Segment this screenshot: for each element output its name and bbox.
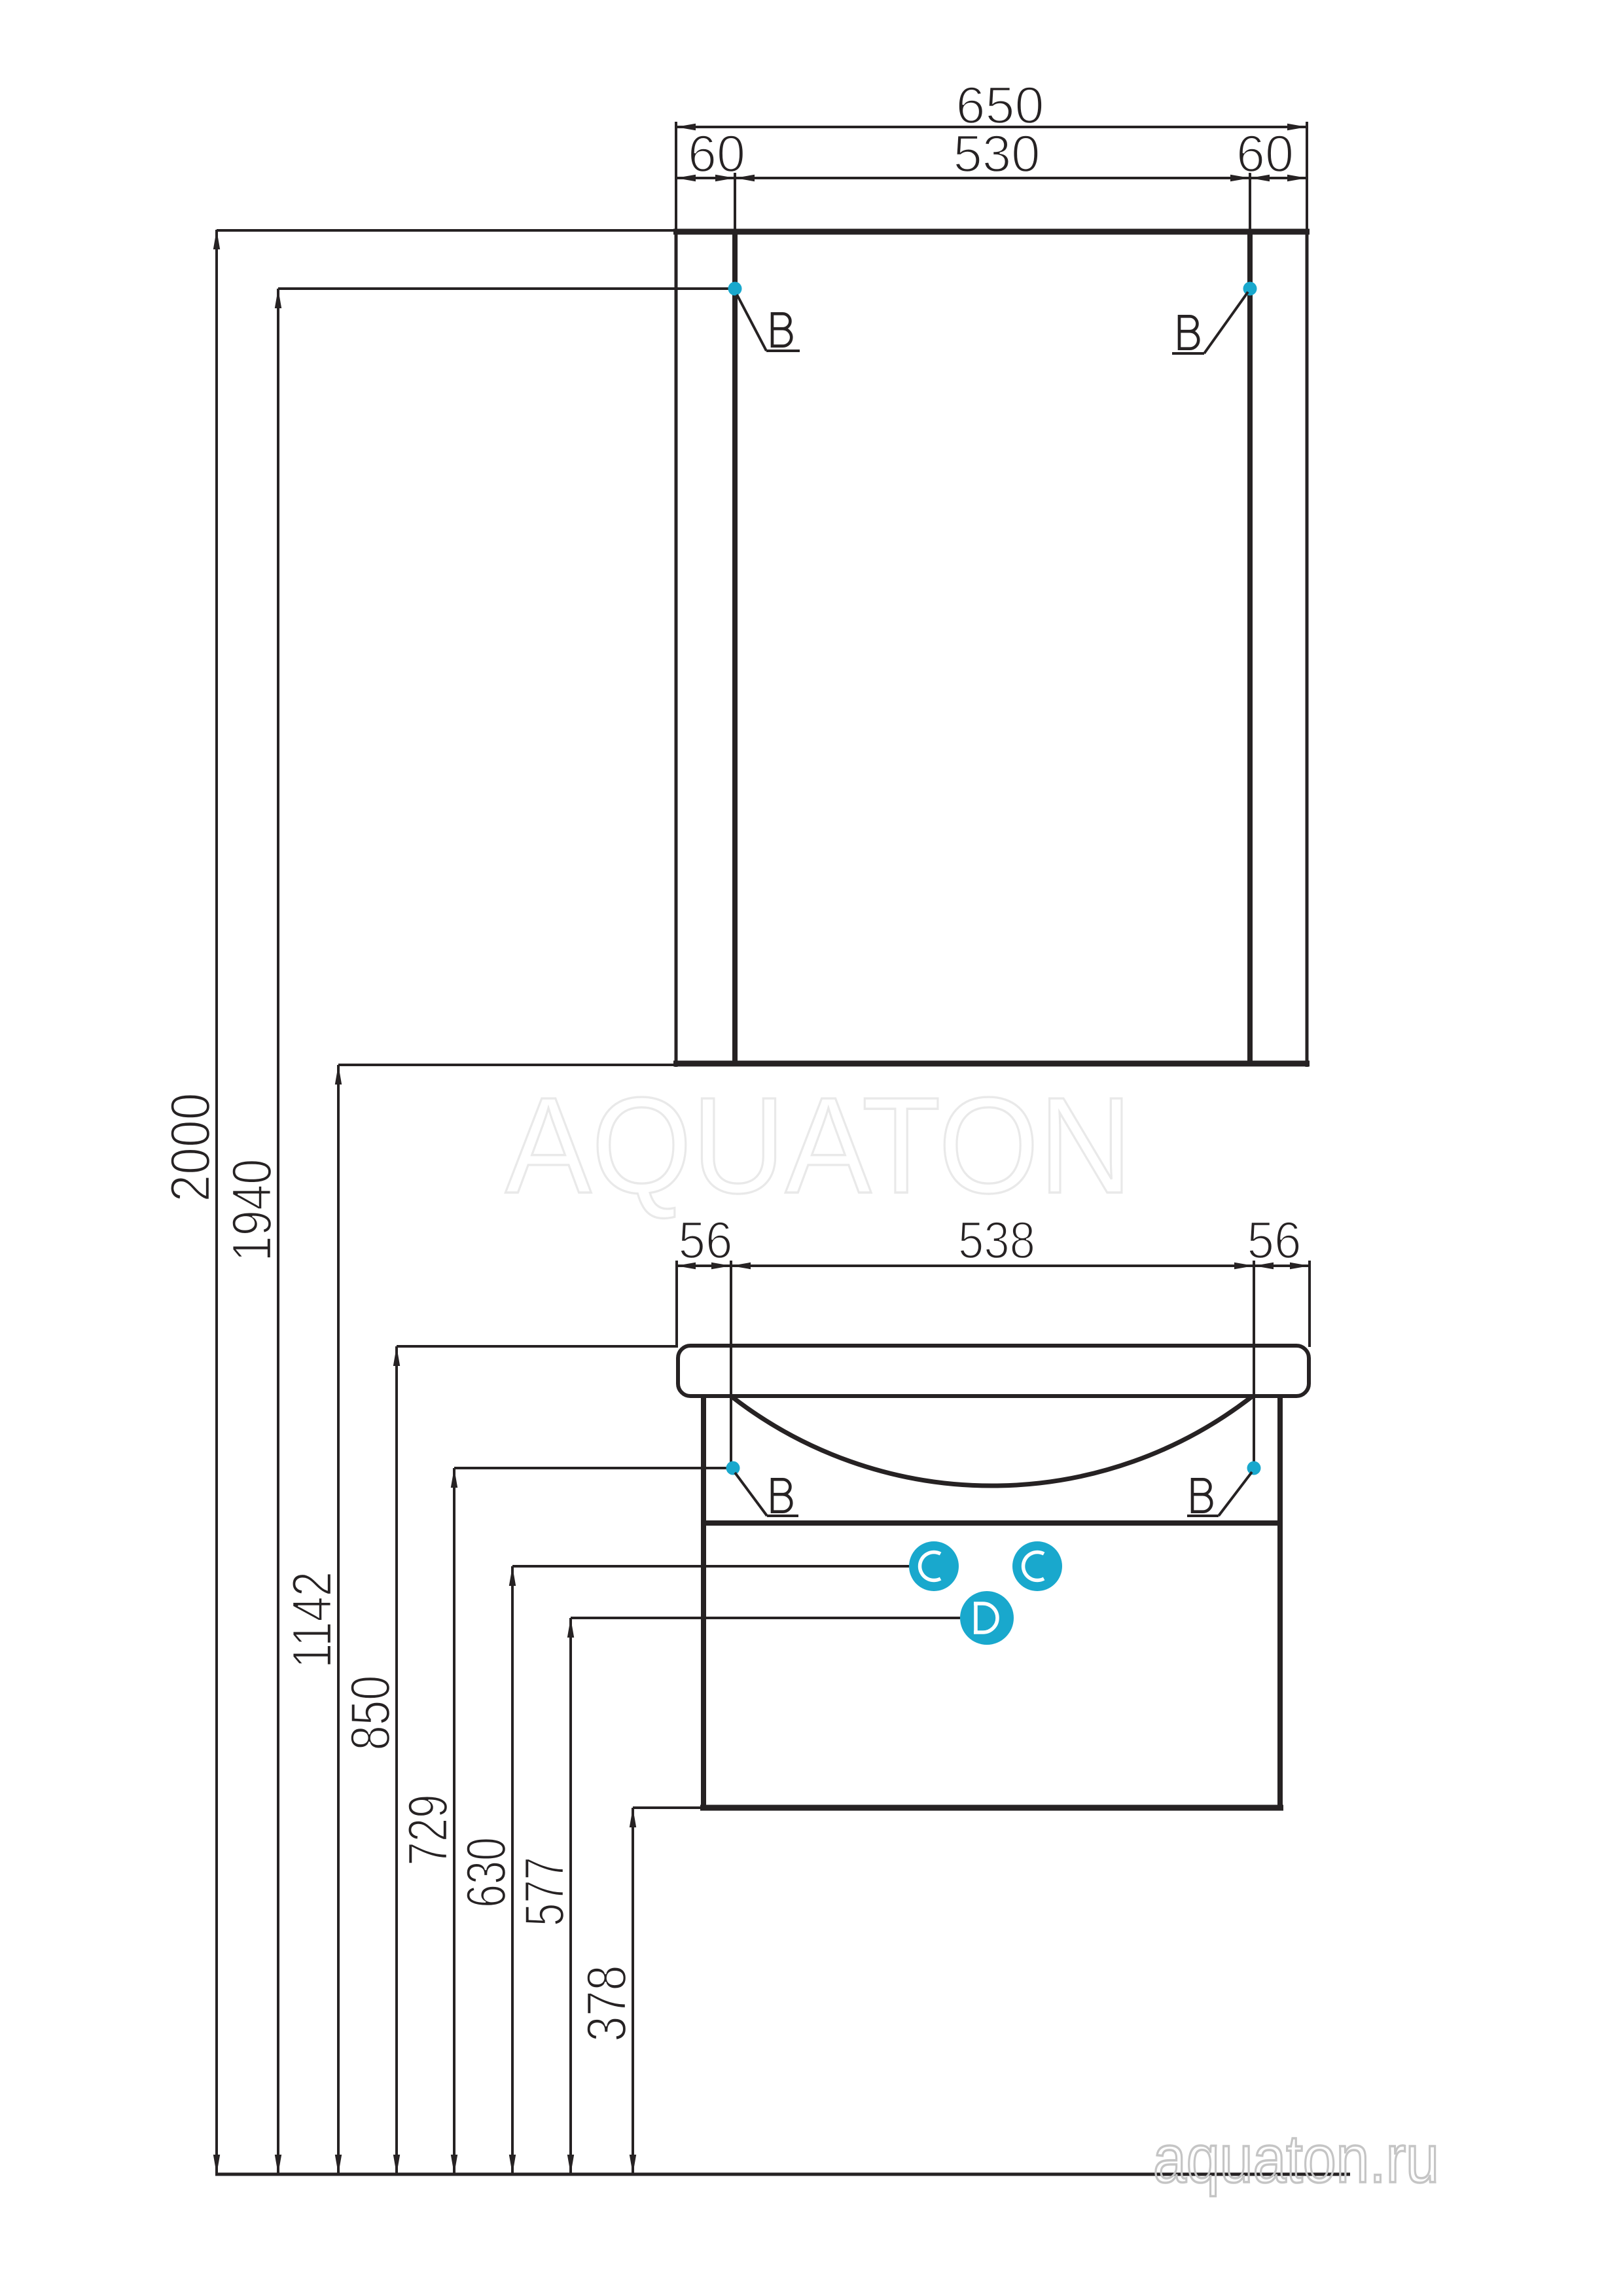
svg-text:850: 850	[340, 1676, 402, 1751]
svg-text:60: 60	[1236, 124, 1294, 183]
svg-text:2000: 2000	[160, 1093, 222, 1202]
svg-text:729: 729	[397, 1795, 459, 1866]
svg-text:530: 530	[954, 124, 1041, 183]
svg-text:56: 56	[679, 1211, 733, 1269]
svg-text:577: 577	[514, 1857, 576, 1926]
svg-text:AQUATON: AQUATON	[505, 1069, 1132, 1222]
svg-text:378: 378	[576, 1965, 638, 2042]
svg-text:60: 60	[688, 124, 745, 183]
svg-text:1142: 1142	[281, 1571, 344, 1668]
svg-text:aquaton.ru: aquaton.ru	[1153, 2121, 1439, 2197]
svg-text:538: 538	[958, 1211, 1035, 1269]
svg-text:630: 630	[455, 1837, 518, 1908]
svg-text:56: 56	[1247, 1211, 1302, 1269]
svg-text:1940: 1940	[221, 1159, 283, 1262]
